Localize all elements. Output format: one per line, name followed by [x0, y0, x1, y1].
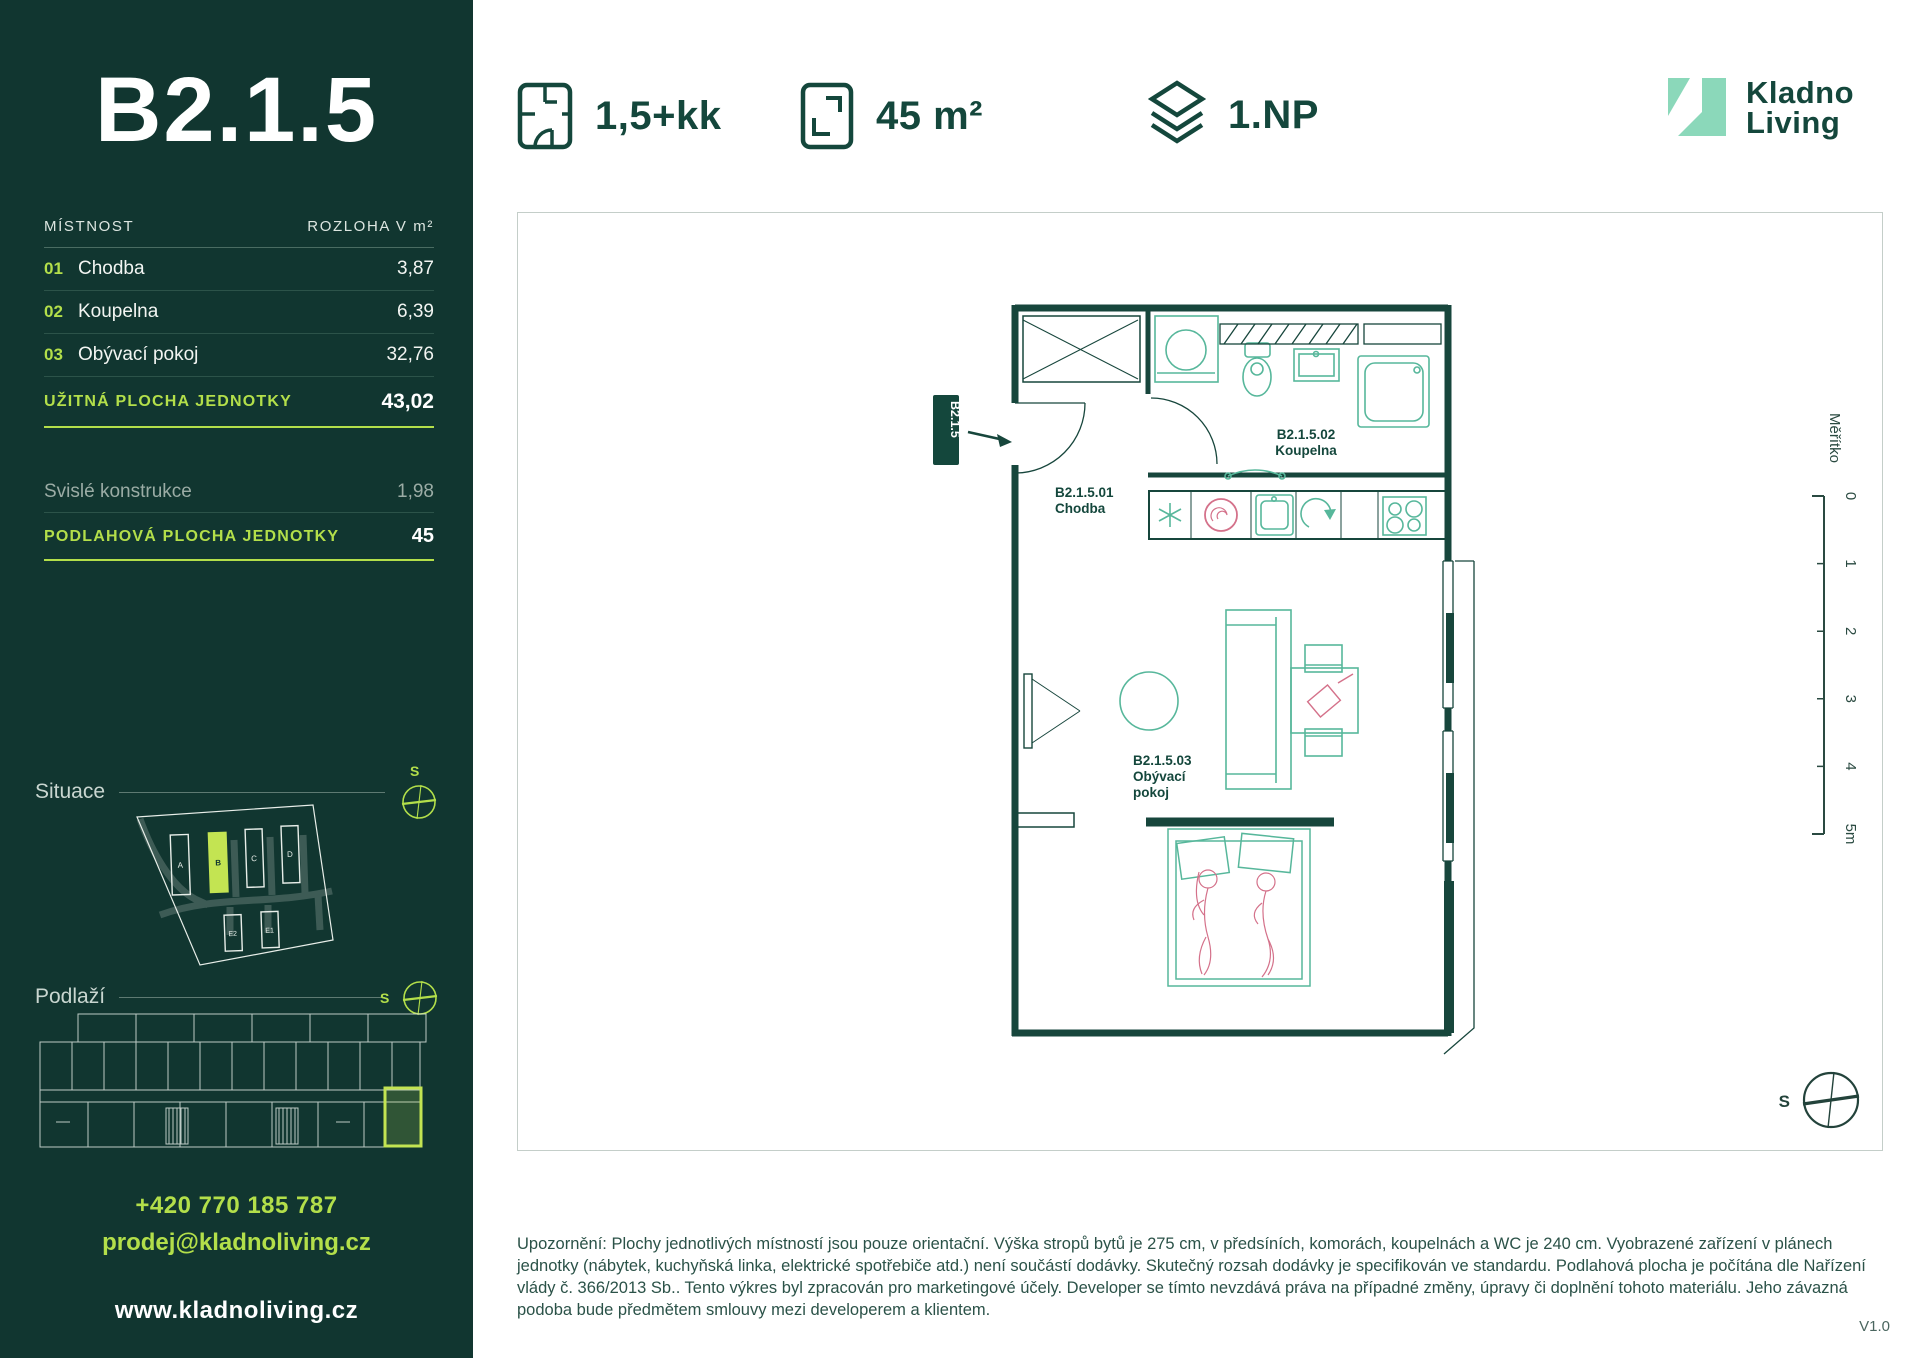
room-name: Koupelna: [78, 301, 158, 323]
scale-tick: 2: [1842, 627, 1859, 635]
room-area: 3,87: [397, 258, 434, 280]
brand-logo: Kladno Living: [1668, 78, 1854, 138]
floor-area-label: PODLAHOVÁ PLOCHA JEDNOTKY: [44, 528, 339, 546]
usable-area-label: UŽITNÁ PLOCHA JEDNOTKY: [44, 393, 292, 411]
brand-logo-text: Kladno Living: [1746, 78, 1854, 138]
disclaimer-text: Upozornění: Plochy jednotlivých místnost…: [517, 1233, 1877, 1321]
usable-area-row: UŽITNÁ PLOCHA JEDNOTKY 43,02: [44, 377, 434, 428]
divider: [119, 792, 385, 793]
table-row: 03 Obývací pokoj 32,76: [44, 334, 434, 377]
floor-label: 1.NP: [1228, 93, 1319, 138]
sleeping-figures: [1193, 870, 1275, 977]
floor-overview: [36, 1012, 468, 1152]
room1-id: B2.1.5.01: [1055, 485, 1114, 500]
brand-line1: Kladno: [1746, 78, 1854, 108]
wardrobe: [1023, 316, 1140, 382]
room3-name-line1: Obývací: [1133, 769, 1187, 784]
exterior-walls: [1012, 305, 1448, 1036]
floorplan-drawing: B2.1.5: [518, 213, 1884, 1152]
interior-walls: [1017, 308, 1448, 827]
building-label: E1: [265, 927, 274, 934]
room-number: 02: [44, 302, 78, 322]
layout-icon: [517, 82, 573, 150]
header-area: ROZLOHA V m²: [307, 218, 434, 235]
building-label: E2: [228, 931, 237, 938]
podlazi-heading: Podlaží: [35, 985, 385, 1009]
situace-compass-icon: S: [394, 762, 444, 824]
room3-name-line2: pokoj: [1133, 785, 1169, 800]
divider: [119, 997, 385, 998]
table-header: MÍSTNOST ROZLOHA V m²: [44, 218, 434, 248]
room-number: 01: [44, 259, 78, 279]
room-name: Obývací pokoj: [78, 344, 198, 366]
appliance-logo: [1205, 499, 1237, 531]
kladno-living-mark-icon: [1668, 78, 1726, 136]
compass-letter: S: [410, 763, 419, 779]
contact-phone: +420 770 185 787: [0, 1192, 473, 1220]
entry-tag: B2.1.5: [948, 401, 962, 438]
construction-row: Svislé konstrukce 1,98: [44, 472, 434, 513]
entry-marker: B2.1.5: [933, 395, 1012, 465]
bed: [1168, 829, 1310, 986]
disposition-label: 1,5+kk: [595, 94, 721, 139]
rooms-table: MÍSTNOST ROZLOHA V m² 01 Chodba 3,87 02 …: [44, 218, 434, 561]
brand-line2: Living: [1746, 108, 1854, 138]
floor-level-icon: [1148, 80, 1206, 150]
site-map: A B C D E2 E1: [100, 795, 360, 980]
room-name: Chodba: [78, 258, 145, 280]
room3-id: B2.1.5.03: [1133, 753, 1192, 768]
floorplan-canvas: B2.1.5: [517, 212, 1883, 1151]
scale-tick: 3: [1842, 695, 1859, 703]
construction-value: 1,98: [397, 481, 434, 503]
room2-id: B2.1.5.02: [1277, 427, 1336, 442]
site-roads: [140, 819, 332, 935]
sidebar: B2.1.5 MÍSTNOST ROZLOHA V m² 01 Chodba 3…: [0, 0, 473, 1358]
situace-label: Situace: [35, 780, 105, 804]
floorplan-sheet: B2.1.5 MÍSTNOST ROZLOHA V m² 01 Chodba 3…: [0, 0, 1920, 1358]
spec-disposition: 1,5+kk: [517, 82, 721, 150]
floor-area-value: 45: [412, 525, 434, 548]
tv: [1024, 674, 1080, 748]
room-labels: B2.1.5.01 Chodba B2.1.5.02 Koupelna B2.1…: [1055, 427, 1337, 800]
plan-compass-letter: S: [1779, 1092, 1790, 1111]
building-label: C: [251, 854, 257, 863]
windows-balcony: [1443, 561, 1474, 1054]
scale-bar: Měřítko 0 1 2 3 4 5m: [1812, 413, 1859, 844]
scale-title: Měřítko: [1826, 413, 1843, 463]
scale-tick: 5m: [1842, 824, 1859, 845]
building-label: D: [287, 850, 293, 859]
kitchen-counter: [1149, 491, 1446, 539]
plan-compass-icon: S: [1779, 1072, 1859, 1128]
table-row: 01 Chodba 3,87: [44, 248, 434, 291]
spec-area: 45 m²: [800, 82, 983, 150]
podlazi-label: Podlaží: [35, 985, 105, 1009]
scale-tick: 4: [1842, 762, 1859, 770]
construction-label: Svislé konstrukce: [44, 481, 192, 503]
area-icon: [800, 82, 854, 150]
building-label: A: [177, 861, 183, 870]
version-label: V1.0: [1859, 1318, 1890, 1335]
unit-highlight: [385, 1088, 421, 1146]
room-area: 32,76: [386, 344, 434, 366]
table-row: 02 Koupelna 6,39: [44, 291, 434, 334]
scale-tick: 0: [1842, 492, 1859, 500]
usable-area-value: 43,02: [381, 390, 434, 414]
contact-web: www.kladnoliving.cz: [0, 1297, 473, 1325]
fridge-symbol: [1159, 503, 1181, 527]
room1-name: Chodba: [1055, 501, 1106, 516]
spec-floor: 1.NP: [1148, 80, 1319, 150]
floor-area-row: PODLAHOVÁ PLOCHA JEDNOTKY 45: [44, 513, 434, 561]
door-swings: [1015, 398, 1217, 473]
room-area: 6,39: [397, 301, 434, 323]
unit-title: B2.1.5: [0, 58, 473, 163]
building-label: B: [215, 858, 221, 867]
area-label: 45 m²: [876, 94, 983, 139]
scale-tick: 1: [1842, 559, 1859, 567]
header-room: MÍSTNOST: [44, 218, 134, 235]
contact-email: prodej@kladnoliving.cz: [0, 1229, 473, 1257]
room2-name: Koupelna: [1275, 443, 1337, 458]
room-number: 03: [44, 345, 78, 365]
contact-block: +420 770 185 787 prodej@kladnoliving.cz …: [0, 1192, 473, 1325]
compass-letter: S: [380, 990, 389, 1006]
table-decor: [1308, 674, 1353, 717]
